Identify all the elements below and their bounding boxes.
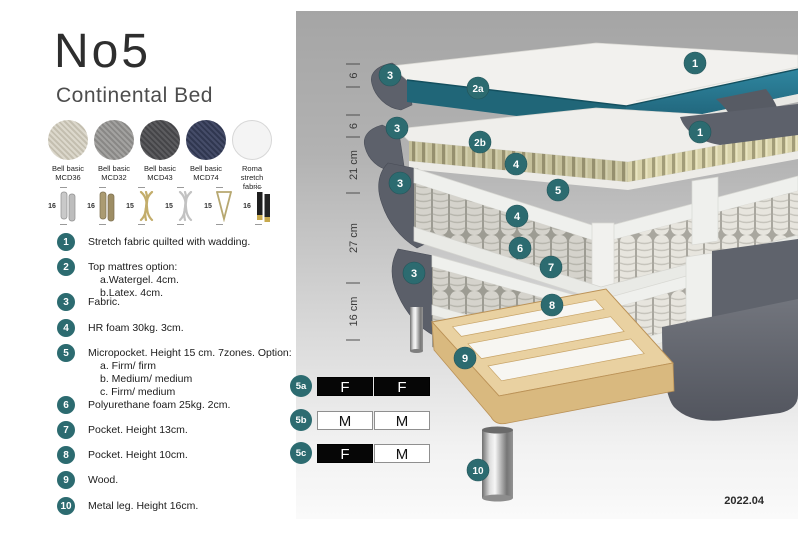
legend-text: Stretch fabric quilted with wadding. bbox=[88, 233, 250, 251]
ruler-label: 27 cm bbox=[348, 223, 360, 253]
callout-2b: 2b bbox=[469, 131, 491, 153]
diagram-panel: 6621 cm27 cm16 cm 312a312b45436783910 5a… bbox=[296, 11, 798, 519]
firmness-row-5b: 5bMM bbox=[290, 409, 430, 431]
firmness-row-badge: 5b bbox=[290, 409, 312, 431]
firmness-cell: F bbox=[317, 444, 373, 463]
callout-7: 7 bbox=[540, 256, 562, 278]
svg-text:4: 4 bbox=[513, 159, 520, 171]
svg-text:4: 4 bbox=[514, 211, 521, 223]
legend-item-5: 5Micropocket. Height 15 cm. 7zones. Opti… bbox=[57, 344, 292, 399]
firmness-row-badge: 5a bbox=[290, 375, 312, 397]
legend-number-badge: 9 bbox=[57, 471, 75, 489]
firmness-cell: M bbox=[374, 411, 430, 430]
svg-text:3: 3 bbox=[411, 268, 417, 280]
firmness-cells: FF bbox=[317, 377, 430, 396]
firmness-cell: M bbox=[374, 444, 430, 463]
legend-item-7: 7Pocket. Height 13cm. bbox=[57, 421, 188, 439]
legend-text: Polyurethane foam 25kg. 2cm. bbox=[88, 396, 230, 414]
svg-text:1: 1 bbox=[692, 58, 698, 70]
legend-text: Micropocket. Height 15 cm. 7zones. Optio… bbox=[88, 344, 292, 399]
legend-number-badge: 10 bbox=[57, 497, 75, 515]
ruler-label: 21 cm bbox=[348, 150, 360, 180]
svg-text:8: 8 bbox=[549, 300, 555, 312]
version-date: 2022.04 bbox=[724, 495, 764, 507]
svg-text:3: 3 bbox=[397, 178, 403, 190]
svg-text:9: 9 bbox=[462, 353, 468, 365]
firmness-cells: FM bbox=[317, 444, 430, 463]
firmness-row-5c: 5cFM bbox=[290, 442, 430, 464]
legend-number-badge: 7 bbox=[57, 421, 75, 439]
svg-text:2a: 2a bbox=[472, 84, 484, 95]
legend-text: Fabric. bbox=[88, 293, 120, 311]
legend-text: Pocket. Height 10cm. bbox=[88, 446, 188, 464]
firmness-cells: MM bbox=[317, 411, 430, 430]
legend-number-badge: 5 bbox=[57, 344, 75, 362]
callout-3: 3 bbox=[403, 262, 425, 284]
callout-3: 3 bbox=[379, 64, 401, 86]
callout-1: 1 bbox=[689, 121, 711, 143]
callout-6: 6 bbox=[509, 237, 531, 259]
legend-number-badge: 6 bbox=[57, 396, 75, 414]
legend-sub-option: b. Medium/ medium bbox=[100, 373, 292, 386]
legend-item-1: 1Stretch fabric quilted with wadding. bbox=[57, 233, 250, 251]
svg-text:3: 3 bbox=[394, 123, 400, 135]
ruler-label: 16 cm bbox=[348, 297, 360, 327]
legend-item-9: 9Wood. bbox=[57, 471, 118, 489]
callout-5: 5 bbox=[547, 179, 569, 201]
svg-text:2b: 2b bbox=[474, 138, 486, 149]
page: No5 Continental Bed Bell basicMCD36Bell … bbox=[0, 0, 800, 533]
legend-text: HR foam 30kg. 3cm. bbox=[88, 319, 184, 337]
legend-text: Pocket. Height 13cm. bbox=[88, 421, 188, 439]
svg-text:10: 10 bbox=[472, 466, 484, 477]
svg-text:6: 6 bbox=[517, 243, 523, 255]
callout-2a: 2a bbox=[467, 77, 489, 99]
firmness-cell: F bbox=[374, 377, 430, 396]
callout-3: 3 bbox=[386, 117, 408, 139]
svg-text:1: 1 bbox=[697, 127, 703, 139]
legend-text: Wood. bbox=[88, 471, 118, 489]
legend-number-badge: 1 bbox=[57, 233, 75, 251]
callout-4: 4 bbox=[506, 205, 528, 227]
callout-10: 10 bbox=[467, 459, 489, 481]
ruler-label: 6 bbox=[348, 123, 360, 129]
legend-sub-option: a. Firm/ firm bbox=[100, 360, 292, 373]
legend-item-4: 4HR foam 30kg. 3cm. bbox=[57, 319, 184, 337]
legend-number-badge: 2 bbox=[57, 258, 75, 276]
legend-number-badge: 3 bbox=[57, 293, 75, 311]
legend-item-10: 10Metal leg. Height 16cm. bbox=[57, 497, 198, 515]
legend-list: 1Stretch fabric quilted with wadding.2To… bbox=[0, 0, 296, 533]
svg-text:3: 3 bbox=[387, 70, 393, 82]
firmness-row-badge: 5c bbox=[290, 442, 312, 464]
legend-sub-option: a.Watergel. 4cm. bbox=[100, 274, 179, 287]
svg-text:7: 7 bbox=[548, 262, 554, 274]
firmness-row-5a: 5aFF bbox=[290, 375, 430, 397]
legend-number-badge: 4 bbox=[57, 319, 75, 337]
callout-9: 9 bbox=[454, 347, 476, 369]
legend-item-6: 6Polyurethane foam 25kg. 2cm. bbox=[57, 396, 230, 414]
dimension-ruler: 6621 cm27 cm16 cm bbox=[346, 64, 360, 340]
callout-1: 1 bbox=[684, 52, 706, 74]
ruler-label: 6 bbox=[348, 72, 360, 78]
legend-item-3: 3Fabric. bbox=[57, 293, 120, 311]
legend-item-8: 8Pocket. Height 10cm. bbox=[57, 446, 188, 464]
callout-3: 3 bbox=[389, 172, 411, 194]
legend-number-badge: 8 bbox=[57, 446, 75, 464]
svg-text:5: 5 bbox=[555, 185, 561, 197]
callout-4: 4 bbox=[505, 153, 527, 175]
firmness-cell: M bbox=[317, 411, 373, 430]
callout-8: 8 bbox=[541, 294, 563, 316]
legend-text: Metal leg. Height 16cm. bbox=[88, 497, 198, 515]
firmness-cell: F bbox=[317, 377, 373, 396]
